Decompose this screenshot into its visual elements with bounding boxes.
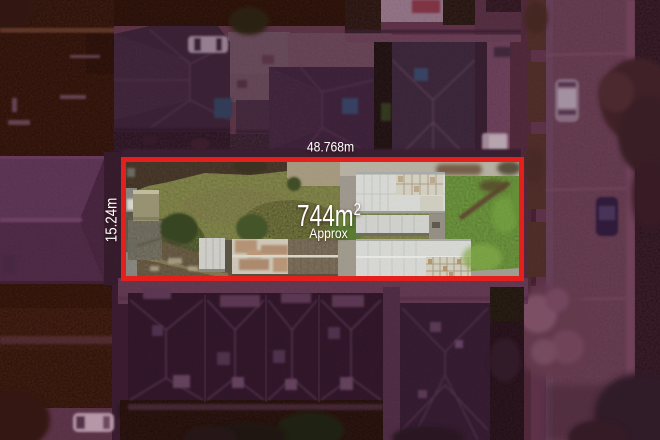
svg-text:Approx: Approx [309,225,348,241]
svg-text:15.24m: 15.24m [104,198,121,242]
svg-text:48.768m: 48.768m [307,139,354,155]
